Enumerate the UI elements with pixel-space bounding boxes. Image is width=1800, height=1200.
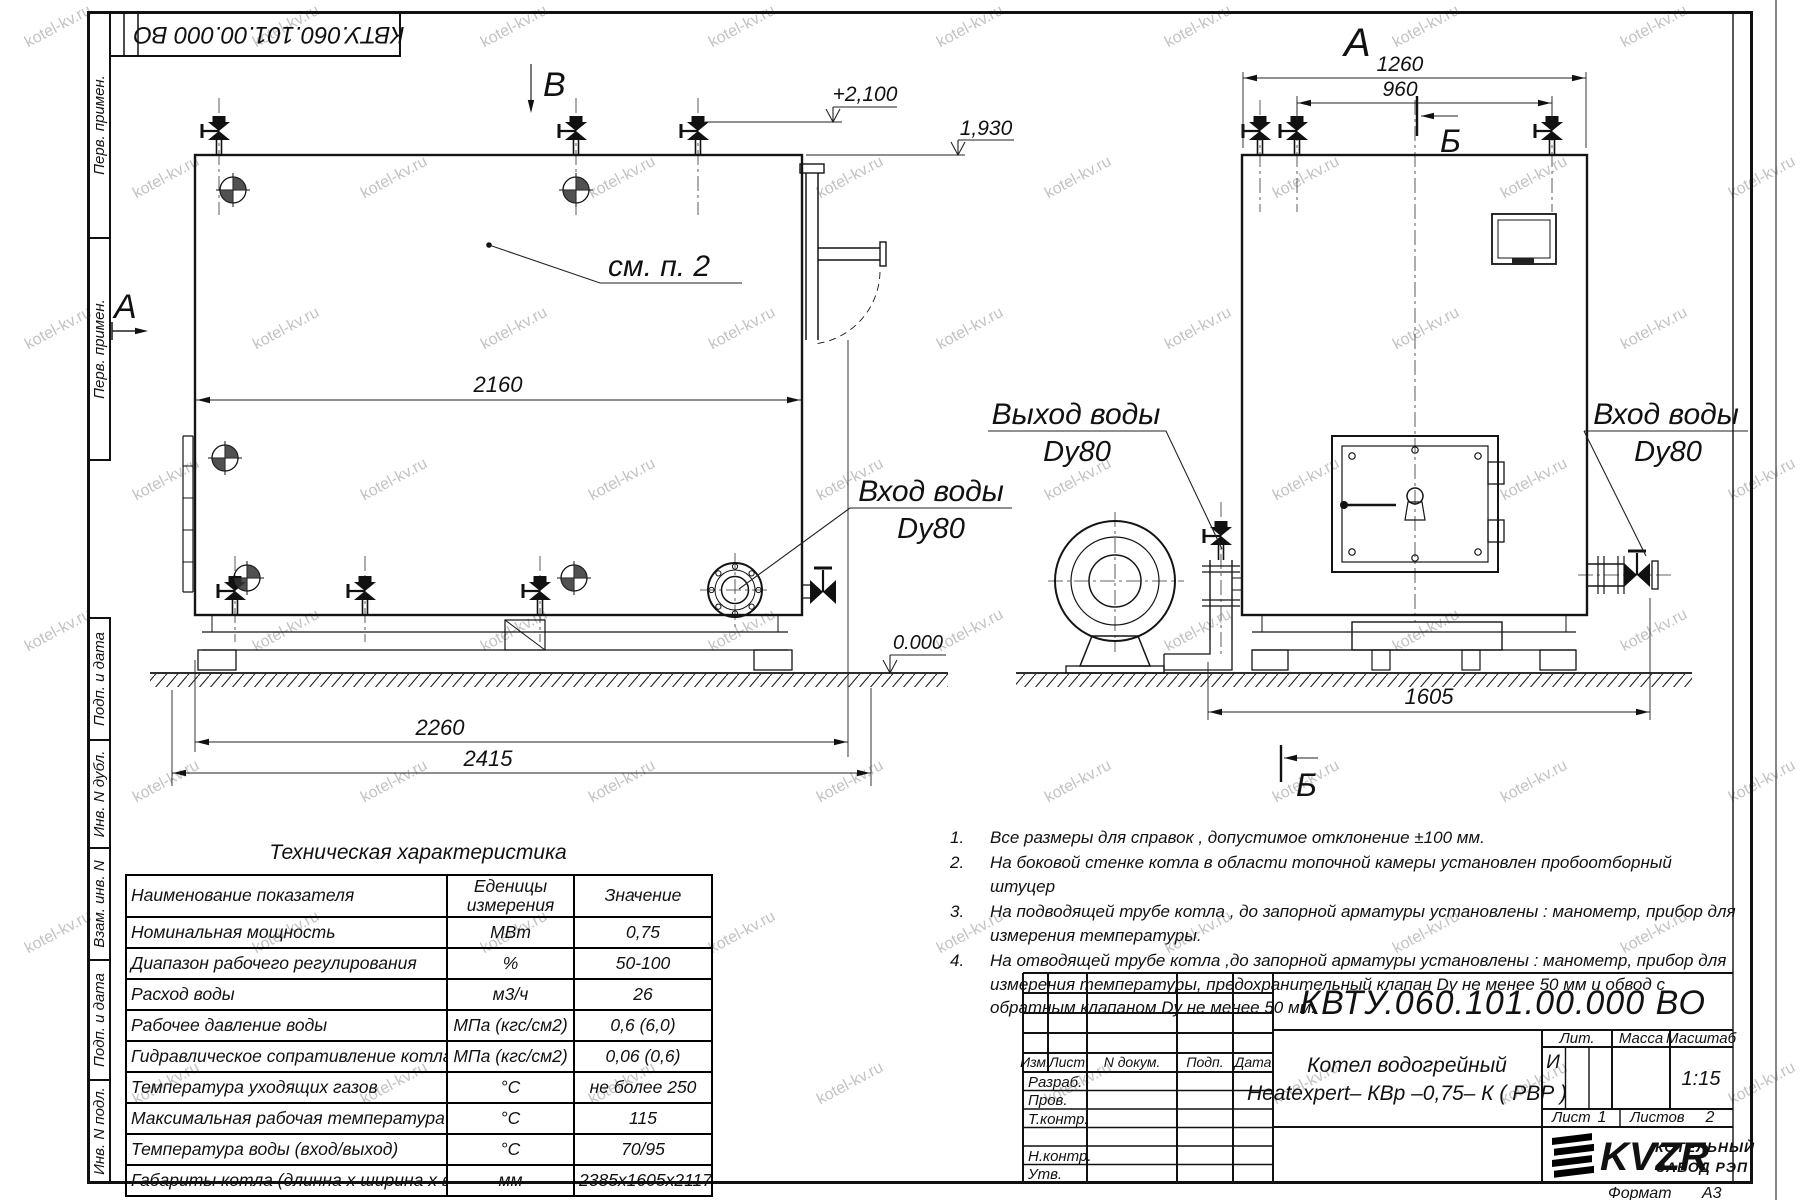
tb-header-data: Дата [1233,1054,1272,1070]
table-row: Температура воды (вход/выход)°С70/95 [126,1134,712,1165]
note-text: На боковой стенке котла в области топочн… [990,851,1738,898]
note-text: На подводящей трубе котла , до запорной … [990,900,1738,947]
row-units: МПа (кгс/см2) [447,1041,574,1072]
tb-list-label: Лист [1551,1109,1591,1126]
level-zero: 0.000 [893,632,943,654]
col-header-units: Еденицы измерения [447,875,574,917]
table-row: Диапазон рабочего регулирования%50-100 [126,948,712,979]
tb-format-label: Формат [1608,1185,1672,1200]
ground-front [150,673,948,687]
note-text: Все размеры для справок , допустимое отк… [990,826,1738,849]
row-units: °С [447,1072,574,1103]
tb-listov-label: Листов [1629,1109,1685,1126]
tech-table-grid: Наименование показателя Еденицы измерени… [125,874,713,1197]
tb-massa-label: Масса [1619,1030,1663,1047]
side-view-valves [1204,116,1650,587]
note-item: 4. На отводящей трубе котла ,до запорной… [950,949,1738,1019]
tb-format-value: А3 [1701,1185,1722,1200]
callout-inlet-side-title: Вход воды [1593,398,1739,431]
section-marker-b-top: Б [1440,123,1461,159]
row-value: 0,06 (0,6) [574,1041,712,1072]
callout-inlet-front-size: Dy80 [897,513,965,545]
row-units: °С [447,1103,574,1134]
view-marker-a-top: А [1342,21,1371,65]
row-name: Гидравлическое сопративление котла [126,1041,447,1072]
table-row: Габариты котла (длинна х ширина х высота… [126,1165,712,1196]
margin-label: Инв. N подл. [91,1087,108,1175]
section-marker-b-bottom: Б [1296,767,1317,803]
row-units: % [447,948,574,979]
view-marker-a-left: А [112,288,137,326]
dimensions-side: 1260 960 1605 [1208,53,1650,720]
row-units: мм [447,1165,574,1196]
note-item: 1. Все размеры для справок , допустимое … [950,826,1738,849]
row-value: 26 [574,979,712,1010]
tb-sign-row: Т.контр. [1028,1111,1089,1128]
callout-see-item: см. п. 2 [608,250,710,283]
row-units: м3/ч [447,979,574,1010]
front-view-marks [208,173,593,595]
title-stamp-rotated: КВТУ.060.101.00.000 ВО [110,12,404,56]
row-units: МПа (кгс/см2) [447,1010,574,1041]
ground-side [1016,673,1692,687]
row-name: Диапазон рабочего регулирования [126,948,447,979]
note-item: 2. На боковой стенке котла в области топ… [950,851,1738,898]
dim-side-top-inner: 960 [1382,78,1417,101]
tb-header-izm: Изм. [1020,1054,1050,1070]
table-row: Температура уходящих газов°Сне более 250 [126,1072,712,1103]
row-value: 70/95 [574,1134,712,1165]
row-name: Температура воды (вход/выход) [126,1134,447,1165]
dim-side-base: 1605 [1405,684,1455,709]
level-marks: +2,100 1,930 0.000 [705,83,1014,673]
note-number: 3. [950,900,990,947]
note-number: 2. [950,851,990,898]
col-header-name: Наименование показателя [126,875,447,917]
kvzr-logo-icon [1552,1133,1594,1178]
row-name: Расход воды [126,979,447,1010]
dim-side-top: 1260 [1377,53,1424,76]
level-mid: 1,930 [960,117,1013,140]
margin-label: Подп. и дата [91,632,108,726]
note-number: 4. [950,949,990,1019]
tb-list-value: 1 [1598,1109,1607,1126]
table-row: Рабочее давление водыМПа (кгс/см2)0,6 (6… [126,1010,712,1041]
tech-table: Техническая характеристика Наименование … [125,841,711,1197]
tb-listov-value: 2 [1705,1109,1715,1126]
tb-product-name-1: Котел водогрейный [1307,1054,1507,1077]
level-top: +2,100 [833,83,898,106]
row-value: 50-100 [574,948,712,979]
margin-label: Взам. инв. N [91,860,108,948]
tb-header-list: Лист [1048,1054,1085,1070]
front-view-valves [202,116,836,615]
col-header-value: Значение [574,875,712,917]
margin-label: Перв. примен. [91,299,108,399]
callout-outlet-side-size: Dy80 [1043,436,1111,468]
notes-list: 1. Все размеры для справок , допустимое … [950,826,1738,1022]
tb-header-podp: Подп. [1186,1054,1223,1070]
tb-sign-row: Утв. [1027,1166,1062,1183]
row-value: 0,6 (6,0) [574,1010,712,1041]
tb-sign-row: Н.контр. [1028,1148,1092,1165]
dim-front-total: 2415 [463,746,514,771]
row-name: Габариты котла (длинна х ширина х высота… [126,1165,447,1196]
row-name: Температура уходящих газов [126,1072,447,1103]
table-row: Гидравлическое сопративление котлаМПа (к… [126,1041,712,1072]
front-view [183,155,886,670]
row-value: не более 250 [574,1072,712,1103]
note-text: На отводящей трубе котла ,до запорной ар… [990,949,1738,1019]
dim-front-width: 2160 [473,372,524,397]
note-item: 3. На подводящей трубе котла , до запорн… [950,900,1738,947]
tb-lit-label: Лит. [1558,1030,1594,1047]
tb-product-name-2: Heatexpert– КВр –0,75– К ( РВР ) [1247,1082,1567,1105]
tb-company-line2: ЗАВОД РЭП [1656,1159,1748,1175]
row-name: Максимальная рабочая температура воды [126,1103,447,1134]
tb-sign-row: Разраб. [1028,1074,1082,1091]
table-header-row: Наименование показателя Еденицы измерени… [126,875,712,917]
margin-label: Перв. примен. [91,75,108,175]
table-row: Максимальная рабочая температура воды°С1… [126,1103,712,1134]
tb-masshtab-value: 1:15 [1682,1068,1722,1090]
margin-label: Инв. N дубл. [91,751,108,838]
note-number: 1. [950,826,990,849]
row-value: 115 [574,1103,712,1134]
row-units: °С [447,1134,574,1165]
margin-label: Подп. и дата [91,973,108,1067]
tb-sign-row: Пров. [1028,1092,1068,1109]
tb-lit-value: И [1546,1052,1560,1073]
tech-table-title: Техническая характеристика [125,841,711,865]
callout-inlet-side-size: Dy80 [1634,436,1702,468]
table-row: Расход водым3/ч26 [126,979,712,1010]
stamp-doc-number: КВТУ.060.101.00.000 ВО [134,21,405,48]
row-value: 0,75 [574,917,712,948]
callout-inlet-front-title: Вход воды [858,475,1004,508]
callout-outlet-side-title: Выход воды [992,398,1161,431]
dim-front-base: 2260 [415,715,466,740]
tb-masshtab-label: Масштаб [1666,1030,1737,1047]
view-marker-b-top: В [543,66,566,104]
row-name: Номинальная мощность [126,917,447,948]
tb-header-ndokum: N докум. [1104,1054,1161,1070]
row-name: Рабочее давление воды [126,1010,447,1041]
drawing-sheet: kotel-kv.rukotel-kv.rukotel-kv.rukotel-k… [0,0,1800,1200]
tb-company-line1: КОТЕЛЬНЫЙ [1655,1138,1755,1155]
row-value: 2385х1605х2117 [574,1165,712,1196]
margin-column: Перв. примен. Перв. примен. Подп. и дата… [88,12,110,1183]
row-units: МВт [447,917,574,948]
dimensions-front: 2160 2260 2415 [172,340,871,786]
table-row: Номинальная мощностьМВт0,75 [126,917,712,948]
centerlines [219,98,1674,658]
